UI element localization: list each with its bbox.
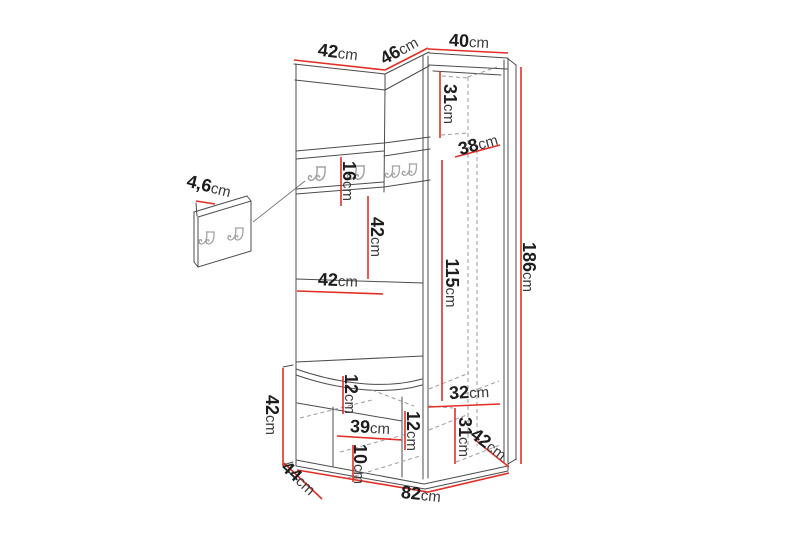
leader-line (253, 181, 305, 222)
dim-label-right-section-width: 40cm (448, 30, 489, 52)
dim-label-bench-inner-height: 12cm (403, 411, 423, 451)
dim-label-niche-width: 42cm (318, 269, 359, 290)
dim-label-bench-inner-width: 39cm (349, 416, 390, 438)
coat-hook-icon (402, 164, 416, 175)
dim-label-lower-compartment-width: 32cm (448, 381, 489, 403)
dim-label-seat-thickness: 12cm (341, 374, 361, 414)
dim-label-plinth-height: 10cm (350, 444, 370, 484)
dim-label-hook-panel-thickness: 4,6cm (185, 171, 234, 201)
dim-label-total-height: 186cm (519, 242, 539, 292)
coat-hook-icon (308, 167, 325, 180)
hallway-unit-drawing: 42cm 46cm 40cm 31cm 38cm 16cm 42cm 42cm … (0, 0, 800, 533)
dim-label-niche-height: 42cm (367, 217, 387, 257)
dim-label-hook-panel-height: 16cm (339, 161, 359, 201)
coat-hook-icon (385, 166, 399, 177)
dimension-labels: 42cm 46cm 40cm 31cm 38cm 16cm 42cm 42cm … (185, 30, 539, 506)
dim-label-cabinet-interior-height: 115cm (442, 258, 462, 307)
furniture-dimension-diagram: 42cm 46cm 40cm 31cm 38cm 16cm 42cm 42cm … (0, 0, 800, 533)
dim-label-total-width: 82cm (400, 482, 442, 506)
dim-label-left-section-width: 42cm (317, 40, 359, 65)
dim-label-top-compartment-height: 31cm (440, 84, 460, 124)
dim-label-bench-height: 42cm (262, 395, 282, 435)
